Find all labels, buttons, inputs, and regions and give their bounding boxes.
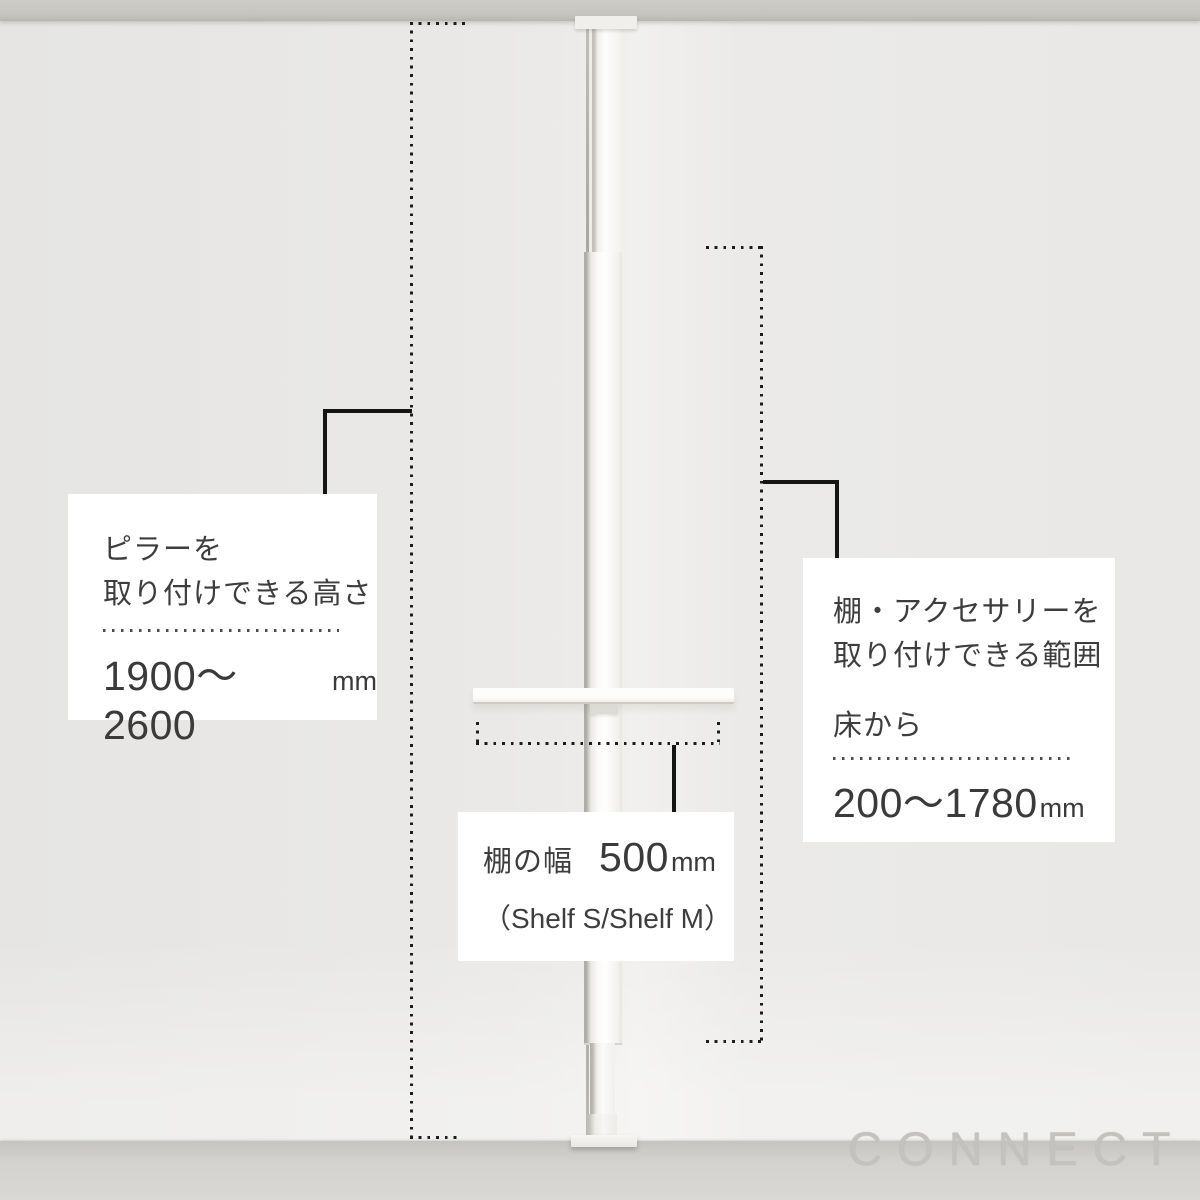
range-callout-connector-horizontal bbox=[763, 480, 839, 484]
mount-range-value: 200〜1780 bbox=[833, 769, 1038, 829]
pillar-bracket-top-dotted-line bbox=[410, 22, 471, 25]
pillar-height-title-line1: ピラーを bbox=[103, 528, 377, 572]
range-bracket-top-dotted-line bbox=[706, 246, 763, 249]
pillar-bracket-vertical-dotted-line bbox=[410, 22, 413, 1139]
mount-range-unit: mm bbox=[1040, 793, 1085, 824]
mount-range-value-row: 200〜1780 mm bbox=[833, 769, 1115, 829]
pillar-height-dotted-separator bbox=[103, 629, 339, 632]
pillar-height-unit: mm bbox=[332, 666, 377, 697]
shelf-width-note: （Shelf S/Shelf M） bbox=[483, 897, 734, 941]
range-bracket-bottom-dotted-line bbox=[706, 1040, 763, 1043]
shelf-width-unit: mm bbox=[671, 847, 716, 878]
range-callout-connector-vertical bbox=[835, 480, 839, 559]
pillar-height-value: 1900〜2600 bbox=[103, 642, 330, 749]
mount-range-callout: 棚・アクセサリーを 取り付けできる範囲 床から 200〜1780 mm bbox=[803, 558, 1115, 842]
range-bracket-vertical-dotted-line bbox=[760, 246, 763, 1043]
shelf-width-value-row: 500 mm bbox=[599, 834, 716, 881]
pillar-callout-connector-vertical bbox=[323, 409, 327, 495]
mount-range-dotted-separator bbox=[833, 757, 1073, 760]
pillar-callout-connector-horizontal bbox=[323, 409, 412, 413]
pillar-height-value-row: 1900〜2600 mm bbox=[103, 642, 377, 749]
pillar-height-callout: ピラーを 取り付けできる高さ 1900〜2600 mm bbox=[68, 494, 377, 720]
mount-range-title-line2: 取り付けできる範囲 bbox=[833, 634, 1115, 678]
shelf-width-label: 棚の幅 bbox=[483, 838, 573, 880]
pillar-bracket-bottom-dotted-line bbox=[410, 1136, 459, 1139]
shelf-width-dotted-line bbox=[476, 742, 720, 745]
shelf-width-connector-vertical bbox=[672, 745, 676, 813]
shelf-width-row: 棚の幅 500 mm bbox=[483, 834, 734, 881]
pillar-height-title-line2: 取り付けできる高さ bbox=[103, 572, 377, 616]
pole-ceiling-plate bbox=[575, 16, 637, 29]
pole-upper-section bbox=[592, 21, 621, 252]
pole-floor-base-plate bbox=[571, 1135, 637, 1147]
shelf-width-value: 500 bbox=[599, 834, 669, 881]
product-annotation-image: ピラーを 取り付けできる高さ 1900〜2600 mm 棚・アクセサリーを 取り… bbox=[0, 0, 1200, 1200]
connect-watermark: CONNECT bbox=[848, 1121, 1188, 1176]
mount-range-prefix: 床から bbox=[833, 704, 1115, 748]
shelf-width-right-tick bbox=[717, 722, 720, 745]
shelf bbox=[473, 688, 734, 704]
mount-range-title-line1: 棚・アクセサリーを bbox=[833, 590, 1115, 634]
shelf-width-callout: 棚の幅 500 mm （Shelf S/Shelf M） bbox=[458, 812, 734, 961]
